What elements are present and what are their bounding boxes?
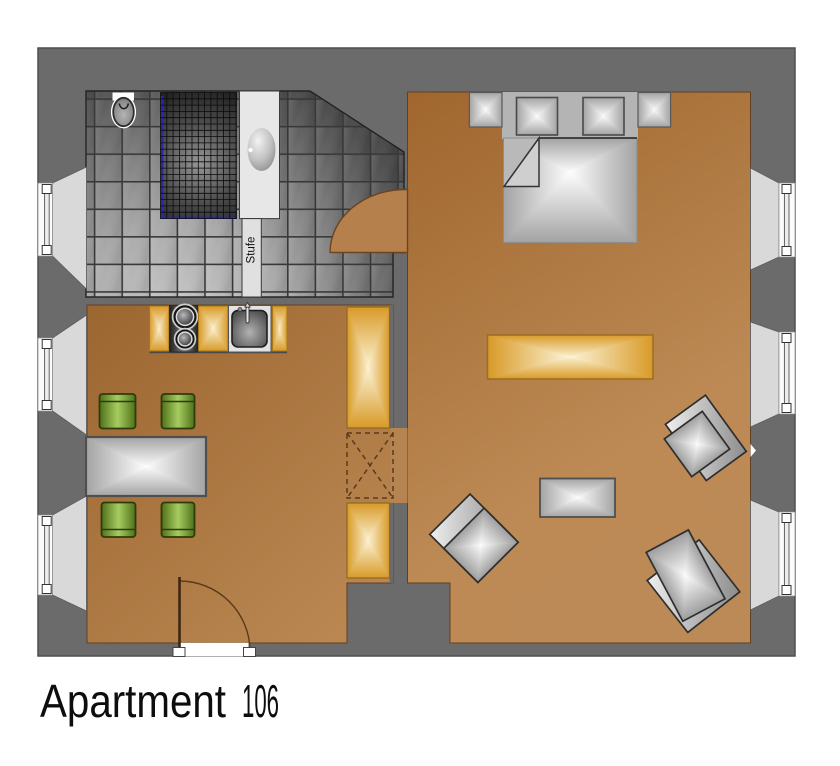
svg-text:Stufe: Stufe [246,237,258,264]
svg-text:106: 106 [242,675,279,727]
svg-text:Apartment: Apartment [40,675,226,727]
